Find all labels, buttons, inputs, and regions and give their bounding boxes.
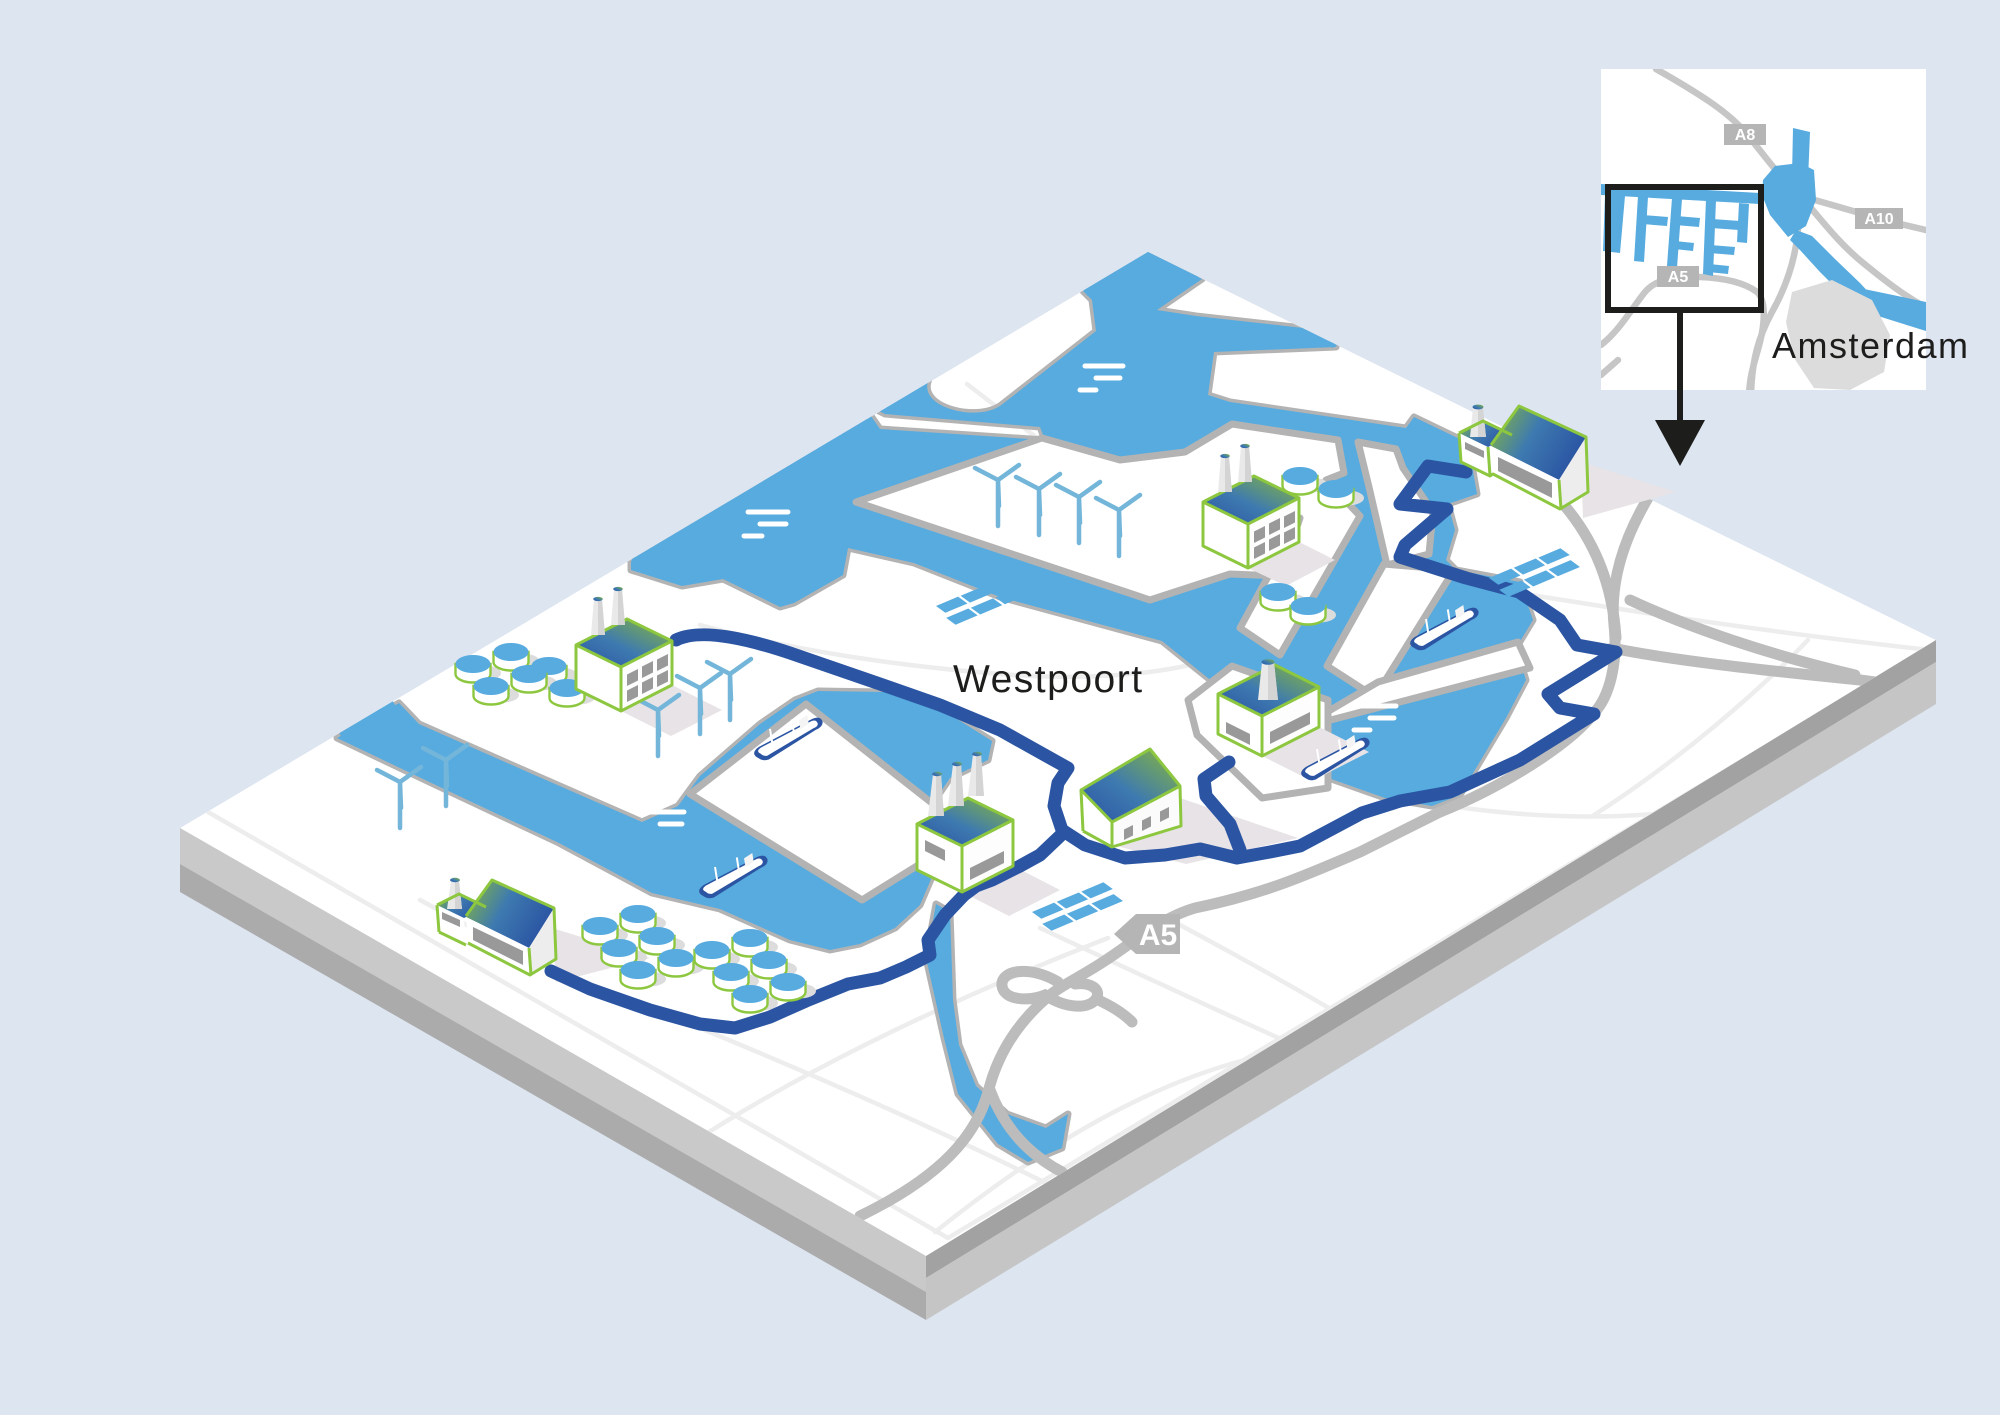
svg-text:A5: A5 <box>1139 919 1177 952</box>
svg-text:Westpoort: Westpoort <box>953 658 1144 701</box>
svg-text:A8: A8 <box>1735 127 1756 144</box>
svg-text:A10: A10 <box>1864 211 1893 228</box>
svg-text:A5: A5 <box>1668 269 1689 286</box>
svg-text:Amsterdam: Amsterdam <box>1772 325 1970 366</box>
